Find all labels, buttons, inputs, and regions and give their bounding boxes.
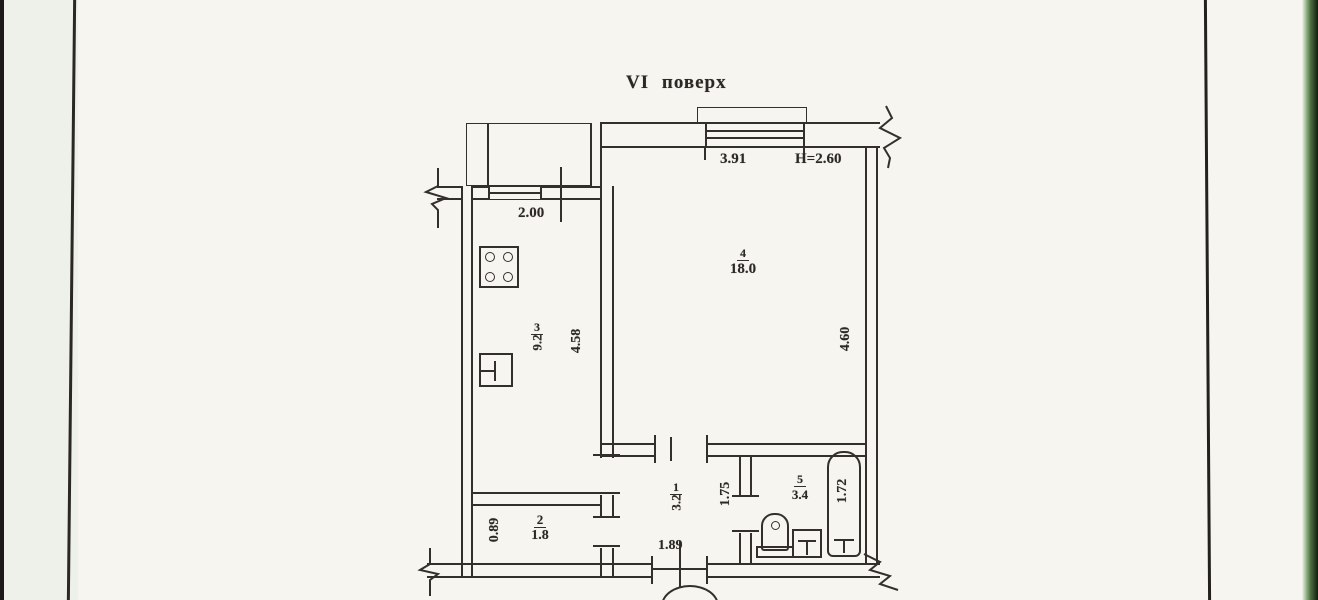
- dim-tick: [560, 167, 562, 222]
- balcony-inner-line: [487, 124, 489, 185]
- room-area: 18.0: [730, 262, 756, 277]
- break-mark-icon: [418, 548, 442, 596]
- dim-room4-width: 3.91: [720, 152, 746, 167]
- door-tick: [593, 454, 620, 456]
- entrance-door-tick: [706, 556, 708, 584]
- room4-window-line: [707, 137, 803, 139]
- wall-room4-top-right: [804, 122, 880, 148]
- entrance-door-tick: [651, 556, 653, 584]
- scanned-floor-plan-page: VI поверх: [0, 0, 1318, 600]
- kitchen-window: [488, 186, 542, 200]
- break-mark-icon: [422, 168, 448, 228]
- room-area: 3.4: [792, 488, 808, 501]
- door-tick: [732, 495, 759, 497]
- wall-kitchen-top-left: [473, 186, 489, 200]
- room4-window: [705, 122, 805, 148]
- break-mark-icon: [860, 550, 900, 592]
- room-number: 2: [534, 513, 547, 528]
- room-label-1: 1 3.2: [661, 481, 691, 509]
- room-area: 1.8: [531, 529, 549, 543]
- door-tick: [706, 435, 708, 463]
- dim-ceiling-height: Н=2.60: [795, 152, 841, 167]
- room-area: 3.2: [670, 494, 683, 510]
- break-mark-icon: [876, 106, 906, 168]
- door-leaf-line: [670, 437, 672, 461]
- door-tick: [593, 516, 620, 518]
- kitchen-window-line: [490, 192, 540, 194]
- room4-window-line: [707, 130, 803, 132]
- door-tick: [654, 435, 656, 463]
- wall-bottom-right: [707, 563, 880, 578]
- wall-kitchen-top-right: [541, 186, 600, 200]
- kitchen-sink-icon: [479, 353, 513, 387]
- room-number: 1: [670, 481, 682, 495]
- door-tick: [732, 530, 759, 532]
- washbasin-icon: [792, 529, 822, 558]
- wall-kitchen-right-upper: [600, 186, 614, 458]
- window-slab-line: [697, 107, 807, 123]
- room-label-4: 4 18.0: [727, 247, 759, 277]
- wall-room2-top: [473, 492, 600, 506]
- wall-right-outer: [865, 148, 878, 565]
- toilet-tank: [756, 546, 794, 558]
- dim-balcony-width: 2.00: [518, 206, 544, 221]
- dim-hall-width: 1.89: [658, 539, 683, 553]
- room-label-2: 2 1.8: [522, 513, 558, 543]
- dim-bathtub-length: 1.72: [836, 471, 852, 511]
- wall-bottom-left: [427, 563, 652, 578]
- room-area: 9.2: [531, 334, 544, 350]
- stove-icon: [479, 246, 519, 288]
- entrance-marker-ellipse: [661, 585, 719, 600]
- wall-hall-bath-upper: [739, 457, 752, 497]
- wall-kitchen-right-mid: [600, 495, 614, 518]
- dim-tick: [704, 148, 706, 160]
- floor-plan: VI поверх: [0, 0, 1318, 600]
- wall-hall-bath-lower: [739, 533, 752, 565]
- dim-room2-depth: 0.89: [488, 510, 504, 550]
- door-tick: [593, 545, 620, 547]
- door-tick: [593, 492, 620, 494]
- wall-room4-top-left: [600, 122, 705, 148]
- room-label-5: 5 3.4: [784, 473, 816, 501]
- wall-left-outer: [461, 186, 473, 578]
- balcony-outline: [466, 123, 592, 186]
- room-number: 4: [737, 247, 749, 261]
- dim-kitchen-depth: 4.58: [570, 321, 586, 361]
- page-title: VI поверх: [626, 73, 727, 92]
- room-label-3: 3 9.2: [521, 321, 553, 349]
- dim-hall-depth: 1.75: [719, 474, 735, 514]
- room-number: 5: [794, 473, 806, 487]
- dim-room4-depth: 4.60: [839, 319, 855, 359]
- room-number: 3: [531, 321, 543, 335]
